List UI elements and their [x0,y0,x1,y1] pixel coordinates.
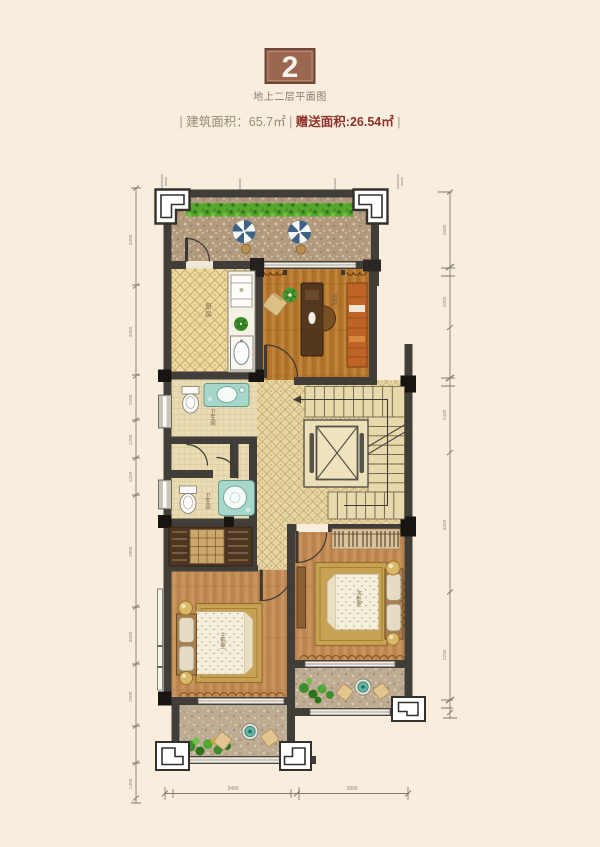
svg-text:3300: 3300 [128,234,134,245]
svg-text:1300: 1300 [128,778,134,789]
svg-text:1200: 1200 [128,471,134,482]
svg-text:2200: 2200 [442,649,448,660]
svg-text:2800: 2800 [346,786,357,792]
svg-text:| 建筑面积：65.7㎡ | 赠送面积:26.54㎡ |: | 建筑面积：65.7㎡ | 赠送面积:26.54㎡ | [180,114,401,129]
svg-text:3000: 3000 [128,326,134,337]
svg-text:3200: 3200 [442,519,448,530]
svg-text:3600: 3600 [128,631,134,642]
svg-text:3400: 3400 [227,786,238,792]
svg-text:2: 2 [282,51,299,84]
svg-text:1200: 1200 [128,434,134,445]
svg-text:2400: 2400 [442,409,448,420]
svg-text:1800: 1800 [128,546,134,557]
svg-text:次卧室: 次卧室 [355,589,362,607]
svg-text:地上二层平面图: 地上二层平面图 [253,90,327,103]
svg-text:书房: 书房 [330,292,337,306]
svg-text:卫生间: 卫生间 [204,493,211,511]
svg-text:1500: 1500 [128,691,134,702]
svg-text:1500: 1500 [128,394,134,405]
svg-text:主卧室: 主卧室 [219,631,226,649]
svg-text:2600: 2600 [442,224,448,235]
svg-text:卫生间: 卫生间 [209,409,216,427]
svg-text:2000: 2000 [442,296,448,307]
